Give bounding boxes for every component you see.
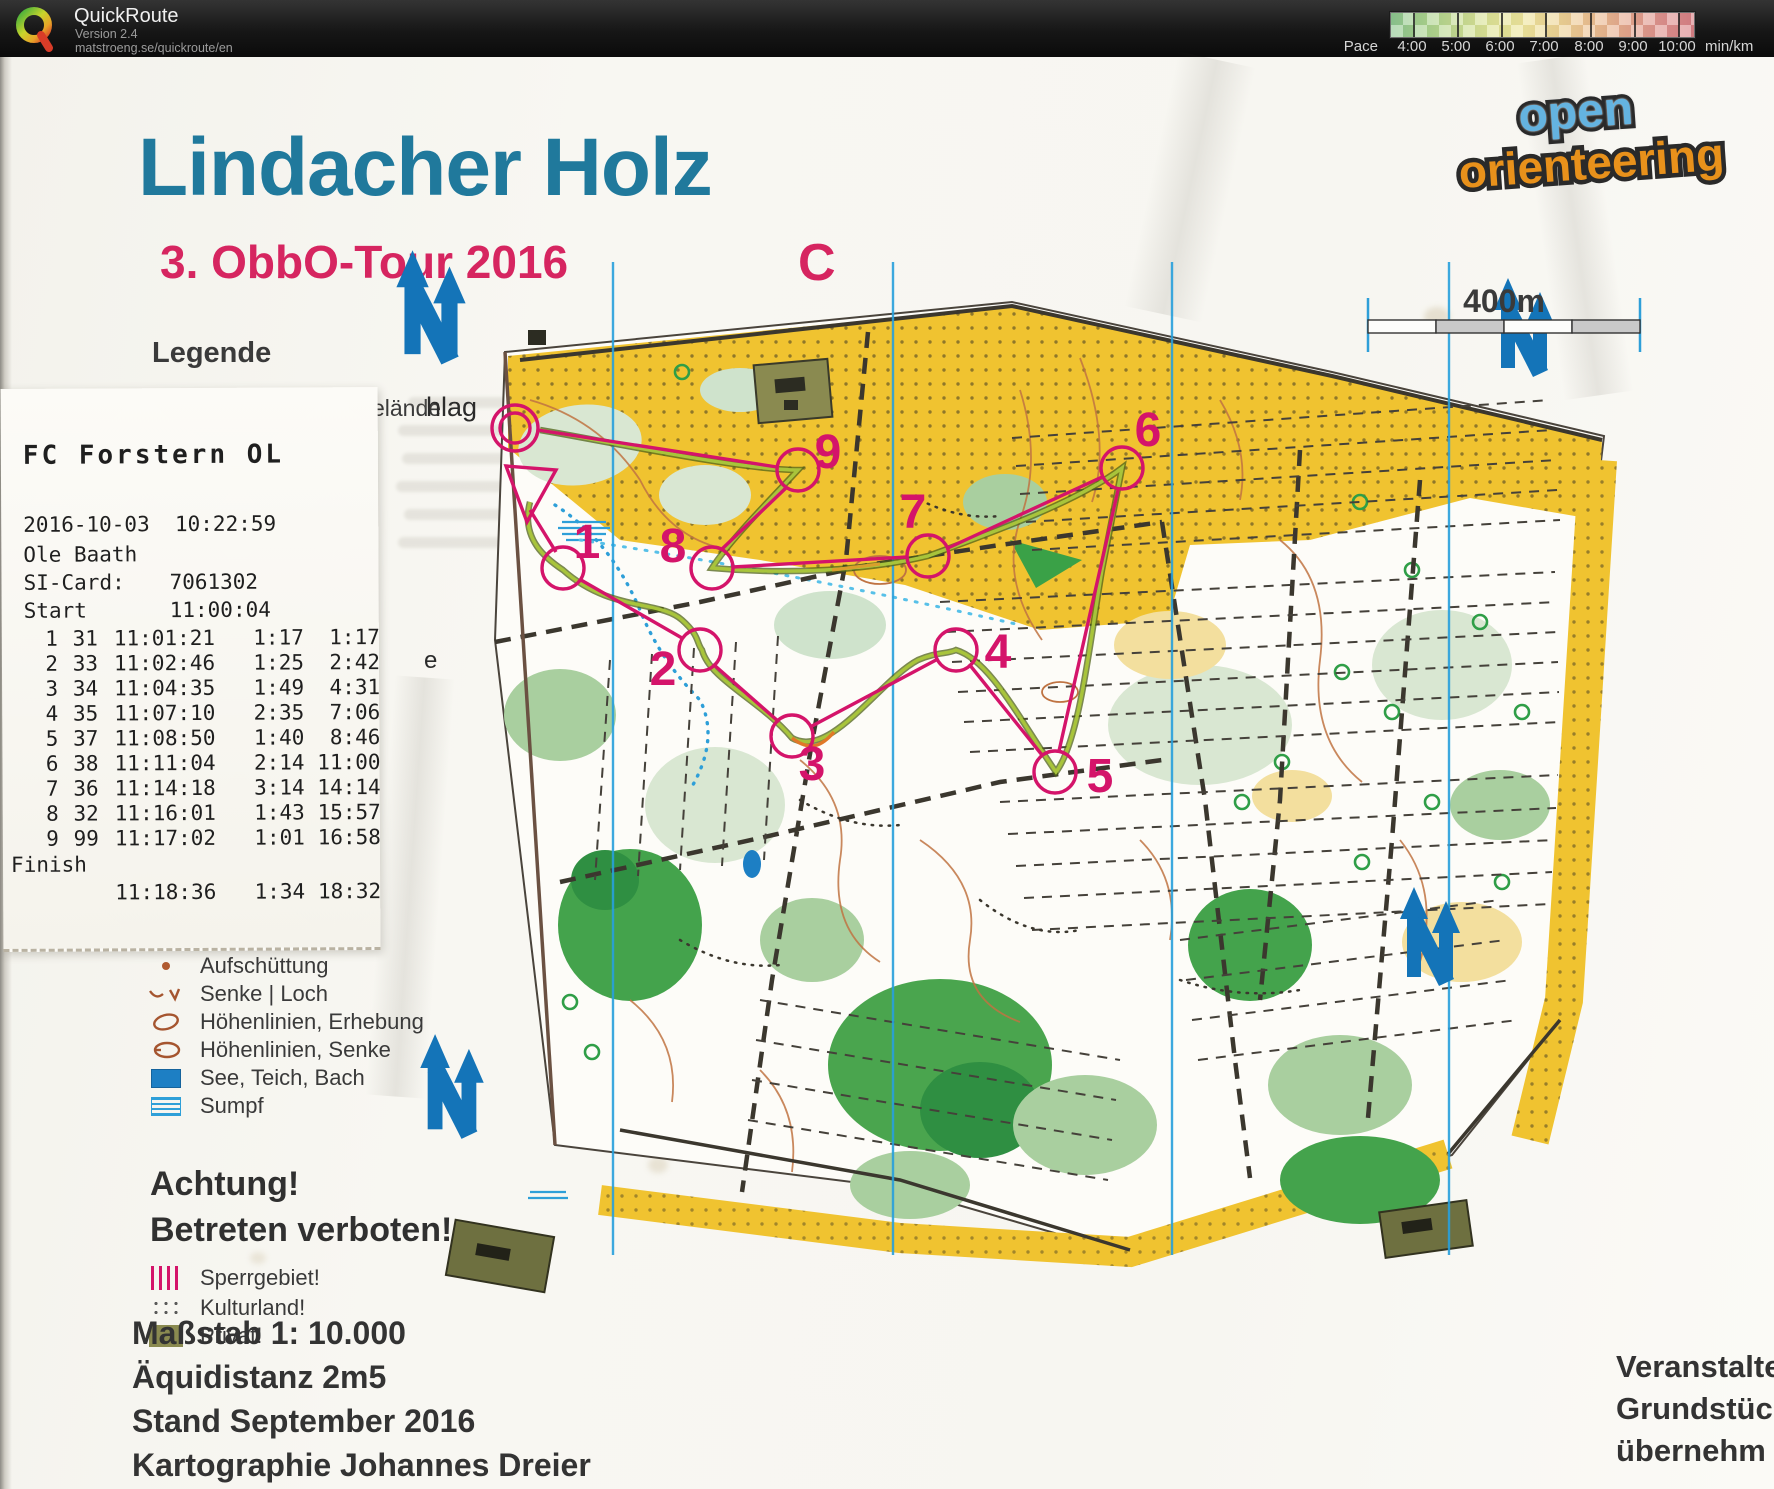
punch-time: 11:11:04 xyxy=(114,751,240,776)
app-version: Version 2.4 xyxy=(75,27,138,41)
pace-unit-label: min/km xyxy=(1705,38,1753,55)
cumulative-time: 1:17 xyxy=(304,625,380,649)
finish-row: 11:18:361:3418:32 xyxy=(25,879,381,905)
control-number-6: 6 xyxy=(1135,404,1162,457)
pace-tick-label: 10:00 xyxy=(1651,38,1703,55)
mound-dot-icon xyxy=(148,962,184,970)
split-time: 2:35 xyxy=(240,700,304,724)
open-orienteering-logo: open orienteering xyxy=(1418,79,1758,209)
club-name: FC Forstern OL xyxy=(23,440,284,471)
split-time: 1:40 xyxy=(240,725,304,749)
control-number-9: 9 xyxy=(815,426,842,479)
split-time: 2:14 xyxy=(240,750,304,774)
runner-name: Ole Baath xyxy=(23,542,137,567)
control-code: 34 xyxy=(58,676,98,700)
control-number-3: 3 xyxy=(799,738,826,791)
split-row: 99911:17:021:0116:58 xyxy=(25,825,381,851)
split-time: 1:25 xyxy=(240,650,304,674)
pace-tick xyxy=(1457,13,1459,37)
map-equidistance-text: Äquidistanz 2m5 xyxy=(132,1359,386,1396)
control-code: 36 xyxy=(59,776,99,800)
split-time: 3:14 xyxy=(241,775,305,799)
map-title: Lindacher Holz xyxy=(138,121,712,215)
organizer-text: Grundstüc xyxy=(1616,1391,1773,1427)
control-order: 9 xyxy=(25,827,59,851)
finish-label: Finish xyxy=(11,853,87,877)
contour-depression-icon xyxy=(148,1040,184,1060)
control-code: 99 xyxy=(59,826,99,850)
start-time: 11:00:04 xyxy=(170,598,271,623)
start-row: Start 11:00:04 xyxy=(24,598,271,623)
clipped-margin-label: hlag xyxy=(426,392,477,422)
cumulative-time: 4:31 xyxy=(304,675,380,699)
pace-label: Pace xyxy=(1312,38,1378,55)
split-time: 1:17 xyxy=(240,625,304,649)
split-time: 1:01 xyxy=(241,825,305,849)
split-time: 1:49 xyxy=(240,675,304,699)
legend-item-label: Höhenlinien, Senke xyxy=(200,1037,391,1063)
si-card-number: 7061302 xyxy=(169,570,258,594)
legend-item-aufschuettung: Aufschüttung xyxy=(148,953,328,979)
map-date-text: Stand September 2016 xyxy=(132,1403,475,1440)
punch-time: 11:14:18 xyxy=(115,776,241,801)
pace-tick xyxy=(1413,13,1415,37)
finish-time: 11:18:36 xyxy=(115,880,241,905)
app-url: matstroeng.se/quickroute/en xyxy=(75,41,233,55)
pace-tick xyxy=(1634,13,1636,37)
split-row: 73611:14:183:1414:14 xyxy=(25,775,381,801)
control-order: 4 xyxy=(24,702,58,726)
split-times-receipt: FC Forstern OL 2016-10-03 10:22:59 Ole B… xyxy=(1,387,381,952)
control-order: 7 xyxy=(25,777,59,801)
pace-tick xyxy=(1590,13,1592,37)
organizer-text: Veranstalte xyxy=(1616,1349,1774,1385)
control-order: 8 xyxy=(25,802,59,826)
control-code: 31 xyxy=(58,626,98,650)
organizer-text: übernehm xyxy=(1616,1433,1766,1469)
legend-heading: Legende xyxy=(152,337,271,370)
cumulative-time: 2:42 xyxy=(304,650,380,674)
split-time: 1:43 xyxy=(241,800,305,824)
map-terrain xyxy=(446,302,1604,1292)
cumulative-time: 8:46 xyxy=(304,725,380,749)
legend-item-sumpf: Sumpf xyxy=(148,1093,264,1119)
finish-total: 18:32 xyxy=(305,879,381,903)
control-number-8: 8 xyxy=(660,520,687,573)
split-row: 33411:04:351:494:31 xyxy=(24,675,380,701)
control-number-7: 7 xyxy=(900,486,927,539)
lake-swatch-icon xyxy=(148,1069,184,1088)
cumulative-time: 15:57 xyxy=(305,800,381,824)
punch-time: 11:02:46 xyxy=(114,651,240,676)
control-code: 35 xyxy=(58,701,98,725)
legend-item-label: Senke | Loch xyxy=(200,981,328,1007)
split-row: 53711:08:501:408:46 xyxy=(24,725,380,751)
split-row: 13111:01:211:171:17 xyxy=(24,625,380,651)
map-scale-text: Maßstab 1: 10.000 xyxy=(132,1315,406,1352)
punch-time: 11:07:10 xyxy=(114,701,240,726)
legend-item-label: See, Teich, Bach xyxy=(200,1065,365,1091)
legend-item-label: Sperrgebiet! xyxy=(200,1265,320,1291)
split-row: 43511:07:102:357:06 xyxy=(24,700,380,726)
control-code: 38 xyxy=(58,751,98,775)
pace-tick xyxy=(1545,13,1547,37)
control-number-4: 4 xyxy=(985,626,1012,679)
punch-time: 11:01:21 xyxy=(114,626,240,651)
control-order: 1 xyxy=(24,627,58,651)
control-number-5: 5 xyxy=(1087,750,1114,803)
app-header: QuickRoute Version 2.4 matstroeng.se/qui… xyxy=(0,0,1774,57)
control-code: 32 xyxy=(59,801,99,825)
map-cartography-text: Kartographie Johannes Dreier xyxy=(132,1447,591,1484)
legend-item-hoehenlinien-senke: Höhenlinien, Senke xyxy=(148,1037,391,1063)
control-order: 6 xyxy=(24,752,58,776)
orienteering-map: 1 2 3 4 5 6 7 8 9 400m hlag e xyxy=(380,240,1774,1340)
punch-time: 11:04:35 xyxy=(114,676,240,701)
quickroute-logo-icon xyxy=(12,4,60,54)
cumulative-time: 11:00 xyxy=(304,750,380,774)
logo-word-orienteering: orienteering xyxy=(1457,128,1726,198)
scale-bar-label: 400m xyxy=(1463,283,1545,319)
pace-tick xyxy=(1678,13,1680,37)
control-order: 3 xyxy=(24,677,58,701)
legend-item-see: See, Teich, Bach xyxy=(148,1065,365,1091)
pace-tick xyxy=(1501,13,1503,37)
control-code: 33 xyxy=(58,651,98,675)
legend-item-label: Aufschüttung xyxy=(200,953,328,979)
legend-item-sperrgebiet: Sperrgebiet! xyxy=(148,1265,320,1291)
control-number-2: 2 xyxy=(650,643,677,696)
si-card-row: SI-Card: 7061302 xyxy=(23,570,258,595)
legend-item-senke-loch: Senke | Loch xyxy=(148,981,328,1007)
split-row: 83211:16:011:4315:57 xyxy=(25,800,381,826)
paper-stain xyxy=(250,1252,266,1264)
control-code: 37 xyxy=(58,726,98,750)
logo-word-open: open xyxy=(1517,82,1635,143)
punch-time: 11:16:01 xyxy=(115,801,241,826)
cumulative-time: 14:14 xyxy=(305,775,381,799)
si-card-label: SI-Card: xyxy=(23,570,133,595)
north-arrow-icon xyxy=(396,250,465,364)
forbidden-area-swatch-icon xyxy=(148,1266,184,1290)
receipt-datetime: 2016-10-03 10:22:59 xyxy=(23,512,276,537)
control-order: 2 xyxy=(24,652,58,676)
clipped-margin-label-2: e xyxy=(424,647,437,674)
warning-heading: Achtung! xyxy=(150,1165,299,1204)
north-arrow-icon xyxy=(420,1034,483,1139)
punch-time: 11:17:02 xyxy=(115,826,241,851)
marsh-swatch-icon xyxy=(148,1097,184,1116)
quickroute-window: QuickRoute Version 2.4 matstroeng.se/qui… xyxy=(0,0,1774,1489)
depression-icon xyxy=(148,986,184,1002)
cumulative-time: 16:58 xyxy=(305,825,381,849)
legend-item-label: Sumpf xyxy=(200,1093,264,1119)
pace-gradient-bar xyxy=(1390,12,1695,38)
start-label: Start xyxy=(24,598,134,623)
punch-time: 11:08:50 xyxy=(114,726,240,751)
split-row: 23311:02:461:252:42 xyxy=(24,650,380,676)
cumulative-time: 7:06 xyxy=(304,700,380,724)
control-order: 5 xyxy=(24,727,58,751)
split-row: 63811:11:042:1411:00 xyxy=(24,750,380,776)
app-title: QuickRoute xyxy=(74,5,179,28)
contour-hill-icon xyxy=(148,1012,184,1032)
finish-split: 1:34 xyxy=(241,879,305,903)
control-number-1: 1 xyxy=(574,516,601,569)
